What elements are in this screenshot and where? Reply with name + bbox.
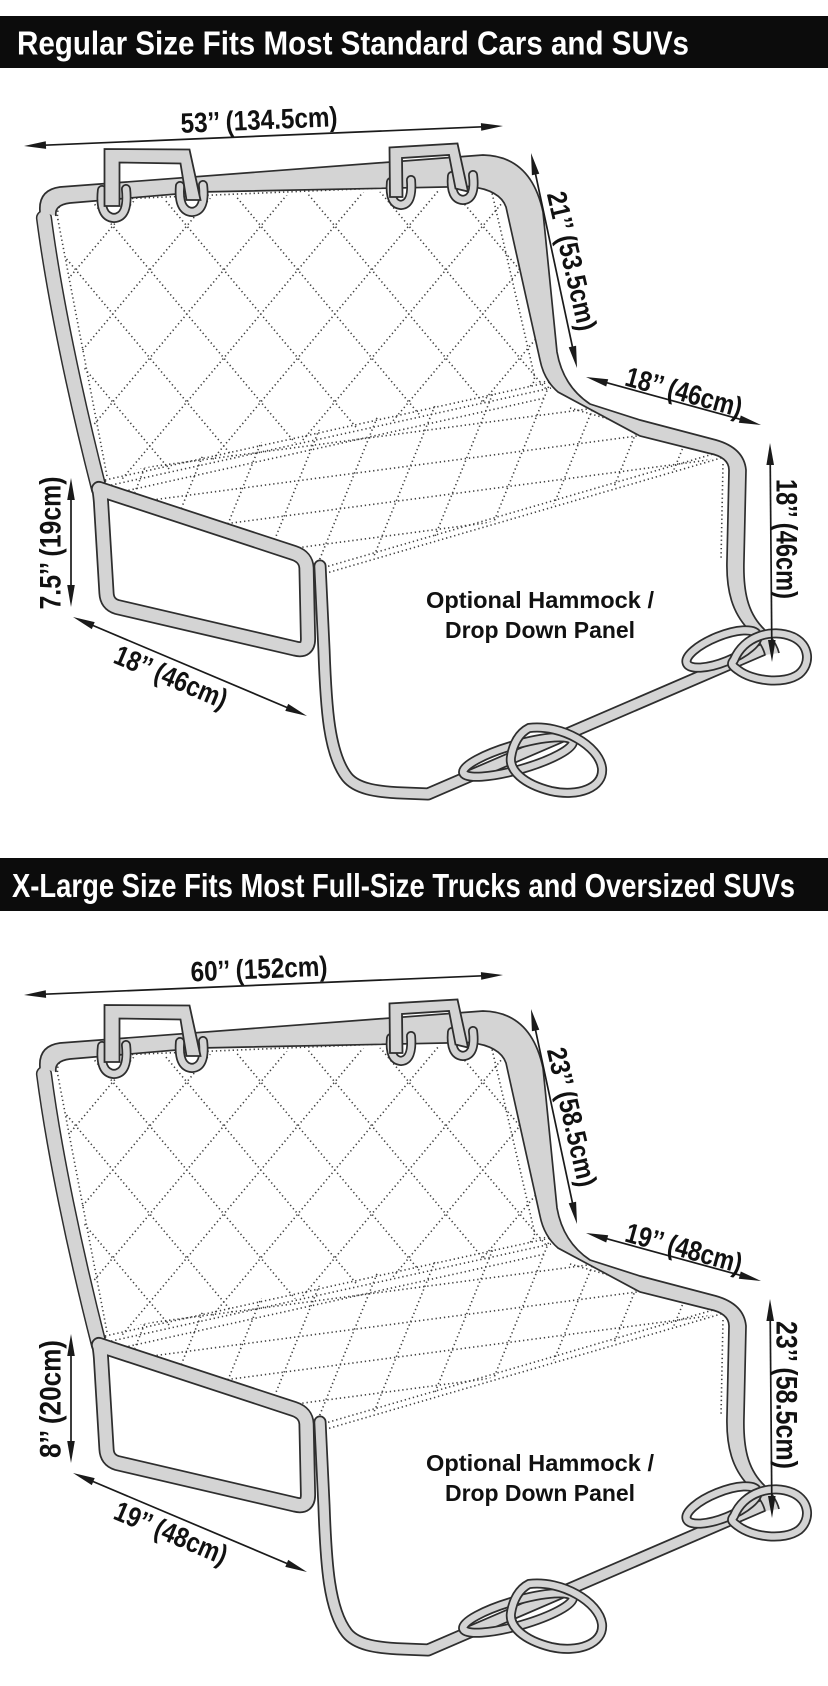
svg-text:18’’ (46cm): 18’’ (46cm) (770, 479, 803, 599)
svg-text:23’’ (58.5cm): 23’’ (58.5cm) (770, 1321, 803, 1469)
svg-text:60’’ (152cm): 60’’ (152cm) (190, 951, 328, 988)
svg-text:19’’ (48cm): 19’’ (48cm) (622, 1217, 746, 1279)
svg-text:X-Large Size Fits Most Full-Si: X-Large Size Fits Most Full-Size Trucks … (12, 867, 795, 904)
svg-text:Regular Size Fits Most Standar: Regular Size Fits Most Standard Cars and… (17, 25, 689, 62)
svg-text:Optional Hammock /: Optional Hammock / (426, 587, 655, 613)
svg-text:Optional Hammock /: Optional Hammock / (426, 1450, 655, 1476)
svg-text:Drop Down Panel: Drop Down Panel (445, 617, 635, 643)
svg-text:8’’ (20cm): 8’’ (20cm) (35, 1340, 68, 1458)
svg-text:7.5’’ (19cm): 7.5’’ (19cm) (35, 477, 68, 610)
svg-text:Drop Down Panel: Drop Down Panel (445, 1480, 635, 1506)
svg-text:18’’ (46cm): 18’’ (46cm) (622, 361, 746, 423)
